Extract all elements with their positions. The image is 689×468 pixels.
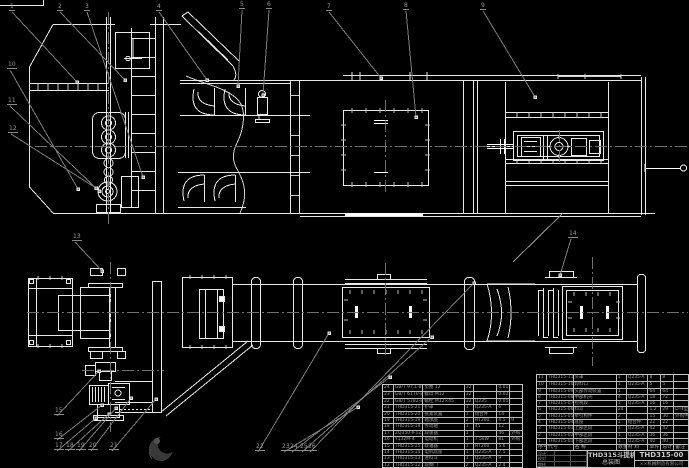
leader-end-dot [98,190,101,193]
bom-cell [509,405,522,410]
bom-cell: 8 [647,375,660,381]
leader-end-dot [142,176,145,179]
table-row: 1THD315-01下部区段1Q235-A4040 [537,438,688,444]
bom-cell: 料斗 [573,407,616,412]
bom-cell: 进料斗 [422,456,463,461]
bom-cell: GB/T 5782-86 [393,399,423,404]
bom-cell: 12 [496,424,509,429]
bom-cell: Q235-A [626,395,648,400]
bom-cell: 1 [616,439,626,444]
leader-line [483,11,535,97]
bom-cell: 中部机壳 [573,395,616,400]
leader-line [75,242,102,271]
bom-cell: THD315-02 [546,433,573,438]
callout-label: 6 [266,2,272,9]
bom-cell: 1 [464,424,473,429]
bom-cell: 14 [383,450,393,455]
table-row: 15THD315-15联轴器1HT2005.6 [383,443,522,449]
bom-cell: 4.5 [496,418,509,423]
bom-cell: 头罩 [573,375,616,381]
bom-cell: 15 [647,414,660,419]
leader-line [238,10,242,86]
bom-cell: 32 [464,385,473,391]
bom-cell: Q235-A [626,439,648,444]
leader-end-dot [206,79,209,82]
bom-cell: THD315-06 [546,407,573,412]
bom-cell: 垫圈 12 [422,385,463,391]
leader-line [57,405,102,440]
boot-column [89,269,126,359]
table-row: 18THD315-18传动轴14512 [383,423,522,429]
bom-cell: 72 [660,395,673,400]
callout-label: 12 [8,126,18,133]
bom-cell [509,444,522,449]
bom-cell: 9 [496,456,509,461]
bom-cell: 1 [616,426,626,431]
bom-cell: 40 [647,439,660,444]
bom-cell: 下部区段 [573,439,616,444]
bom-cell: 0.01 [496,385,509,391]
bom-cell [473,431,497,436]
bom-cell: 20 [383,412,393,417]
callout-label: 26 [307,444,317,451]
table-row: 20THD315-20张紧装置1组合件14 [383,411,522,417]
callout-label: 3 [84,4,90,11]
bom-cell: 减速器 [422,431,463,436]
bom-cell [673,420,688,425]
drive-platform [505,82,609,213]
projection-line [513,213,563,262]
leader-end-dot [130,397,133,400]
bom-cell: 21 [383,405,393,410]
signature-cell [555,462,571,467]
leader-line [10,106,99,191]
callout-label: 4 [156,4,162,11]
table-row: 3THD315-03上部区段1Q235-A4242 [537,425,688,431]
signature-label: 审核 [537,462,555,467]
bom-cell: 15 [383,444,393,449]
bom-cell: THD315-12 [393,463,423,468]
buckets-upper [193,88,246,115]
bom-cell: 17 [383,431,393,436]
drawing-number: THD315-00 [635,451,688,461]
bom-cell [673,401,688,406]
bom-cell: 32 [464,399,473,404]
leader-end-dot [101,404,104,407]
title-cell: THD315斗提机 总装图 [588,451,635,467]
bom-cell: 24 [383,385,393,391]
bom-cell: 12 [383,463,393,468]
watermark-logo [149,435,177,462]
bom-cell: 1 [616,389,626,394]
top-view-elevation [29,12,687,217]
bom-cell [673,426,688,431]
table-row: 10THD315-10卸料口1Q235-A55 [537,381,688,387]
callout-label: 17 [54,443,64,450]
bom-cell [673,389,688,394]
callout-label: 21 [109,443,119,450]
bom-cell: 40 [660,439,673,444]
bom-cell: 1 [616,420,626,425]
bom-cell [509,392,522,397]
leader-end-dot [76,81,79,84]
bom-cell: 电动机 [422,437,463,442]
bom-cell [509,463,522,468]
table-row: 14THD315-14电机底座1Q235-A7.5 [383,449,522,455]
callout-label: 5 [239,2,245,9]
leader-end-dot [431,336,434,339]
bom-cell: 1 [464,450,473,455]
bom-cell [626,389,648,394]
bom-cell: THD315-19 [393,418,423,423]
bom-cell: THD315-03 [546,426,573,431]
bom-cell: 螺栓 M12×45 [422,399,463,404]
bom-cell: 5 [647,382,660,387]
bom-cell [509,385,522,391]
bom-cell: 1 [616,433,626,438]
bom-cell: THD315-18 [393,424,423,429]
bom-cell: 23 [383,392,393,397]
bom-cell: 轴承座 [422,418,463,423]
bom-cell [673,382,688,387]
signature-cell [571,462,587,467]
signature-grid: 设计校对审核 [537,451,588,467]
bom-cell: 10 [537,382,546,387]
bom-cell: 46 [496,431,509,436]
bom-cell: 上部区段 [573,426,616,431]
bom-cell: 7.5kW [473,437,497,442]
bom-cell: 16 [647,401,660,406]
leader-line [560,239,571,275]
bom-cell: 护罩 [422,405,463,410]
bom-cell: Q235-A [473,463,497,468]
bom-cell: 螺母 M12 [422,392,463,397]
leader-end-dot [115,407,118,410]
bom-cell: 传动轴 [422,424,463,429]
bom-cell: 18 [647,395,660,400]
bom-cell: 底座 [573,420,616,425]
bom-cell: 卸料口 [573,382,616,387]
bom-cell: THD315-13 [393,456,423,461]
bom-cell: THD315-05 [546,414,573,419]
bom-cell: 1 [616,401,626,406]
bom-cell: 头部传动装置 [573,389,616,394]
bom-cell: Q235-A [626,401,648,406]
leader-end-dot [473,282,476,285]
bom-cell: 13 [383,456,393,461]
bom-cell: 24 [616,407,626,412]
bom-cell: THD315-04 [546,420,573,425]
callout-label: 15 [54,408,64,415]
callout-label: 19 [76,443,86,450]
bom-cell: 7.5 [496,450,509,455]
table-row: 21THD315-21护罩1Q235-A6 [383,404,522,410]
buckets-lower [183,175,236,202]
bom-cell [626,414,648,419]
bom-cell: HT200 [473,444,497,449]
bom-cell: 2 [464,463,473,468]
leader-line [258,333,329,452]
leader-line [263,10,269,95]
motor-gearbox-detail [90,382,154,421]
bom-cell: 1 [464,405,473,410]
bom-cell: 2 [464,418,473,423]
title-block: 设计校对审核 THD315斗提机 总装图 THD315-00 ××机械制造有限公… [536,450,689,468]
bom-cell: Q235-A [473,450,497,455]
bom-cell: 检视段 [573,401,616,406]
leader-end-dot [124,79,127,82]
bom-cell: 36 [647,433,660,438]
table-row: 23GB/T 6170-86螺母 M12320.02 [383,391,522,397]
bom-cell: Q235-A [473,456,497,461]
bom-cell: 1 [464,456,473,461]
bom-cell: 1 [464,431,473,436]
table-row: 24GB/T 97.1-85垫圈 12320.01 [383,385,522,391]
table-row: 4THD315-04底座1组合件2222 [537,419,688,425]
leader-line [329,12,381,78]
bom-cell [473,392,497,397]
bom-cell: Y132M-4 [393,437,423,442]
bom-cell: 组合件 [626,420,648,425]
bom-table-left: 24GB/T 97.1-85垫圈 12320.0123GB/T 6170-86螺… [382,384,523,468]
bom-cell: 30 [660,414,673,419]
bom-cell [509,399,522,404]
leader-line [159,12,207,80]
bom-cell: 观察门 [422,463,463,468]
bom-cell [626,407,648,412]
table-row: 12THD315-12观察门2Q235-A2.4 [383,462,522,468]
number-cell: THD315-00 ××机械制造有限公司 [635,451,688,467]
bom-cell [673,433,688,438]
leader-end-dot [95,417,98,420]
callout-label: 20 [88,443,98,450]
bom-cell: 22 [660,420,673,425]
bom-cell: 29 [660,407,673,412]
table-row: 7THD315-07检视段1Q235-A1616 [537,400,688,406]
bom-cell: 1.2 [647,407,660,412]
bom-table-right: 11THD315-11头罩1Q235-A8810THD315-10卸料口1Q23… [536,374,689,451]
cad-drawing-canvas: 24GB/T 97.1-85垫圈 12320.0123GB/T 6170-86螺… [0,0,689,468]
bom-cell: 32 [464,392,473,397]
bom-cell: 42 [647,426,660,431]
bom-cell: THD315-11 [546,375,573,381]
table-row: 19THD315-19轴承座2HT2004.59 [383,417,522,423]
bom-cell: Q235-A [626,433,648,438]
bom-cell: 外购 [509,437,522,442]
bom-cell: 5.6 [496,444,509,449]
callout-label: 24 [289,444,299,451]
callout-label: 16 [54,432,64,439]
bom-cell: 22 [383,399,393,404]
leader-end-dot [357,406,360,409]
table-row: 17ZQ350-Ⅱ-1Z减速器146外购 [383,430,522,436]
callout-label: 2 [57,4,63,11]
table-row: 2THD315-02中部区段1Q235-A3636 [537,432,688,438]
bom-cell: 1 [537,439,546,444]
bom-cell: THD315-20 [393,412,423,417]
bom-cell: 42 [660,426,673,431]
bom-cell: 6 [496,405,509,410]
callout-label: 22 [255,444,265,451]
leader-end-dot [77,188,80,191]
bom-cell: 81 [496,437,509,442]
leader-end-dot [101,270,104,273]
bom-cell: 0.02 [496,392,509,397]
bom-cell: 中部区段 [573,433,616,438]
discharge-rod [645,164,687,172]
table-row: 9THD315-09头部传动装置16464 [537,388,688,394]
bom-cell: 0.05 [496,399,509,404]
bom-cell: THD315-01 [546,439,573,444]
leader-end-dot [98,370,101,373]
bom-cell: DTⅡ型 [673,407,688,412]
drawing-title: THD315斗提机 [588,451,634,459]
callout-label: 14 [568,231,578,238]
bom-cell: 22 [647,420,660,425]
table-row: 16Y132M-4电动机17.5kW81外购 [383,436,522,442]
bom-cell: 联轴器 [422,444,463,449]
leader-end-dot [415,116,418,119]
bom-cell: 2 [616,414,626,419]
bom-cell: Q235 [473,399,497,404]
bom-cell: THD315-10 [546,382,573,387]
company-name: ××机械制造有限公司 [635,461,688,467]
bom-cell: 2.4 [496,463,509,468]
top-inlet-box [116,33,150,69]
bom-cell: 外购件 [673,414,688,419]
bom-cell: 4 [537,420,546,425]
bom-cell: 8 [537,395,546,400]
bom-cell: THD315-14 [393,450,423,455]
bom-cell: Q235-A [626,426,648,431]
bom-cell [509,412,522,417]
bom-cell: 19 [383,418,393,423]
bom-cell: THD315-08 [546,395,573,400]
bom-cell: 1 [616,375,626,381]
leader-end-dot [95,187,98,190]
table-row: 13THD315-13进料斗1Q235-A9 [383,455,522,461]
leader-line [11,134,96,188]
callout-label: 13 [72,234,82,241]
bom-cell: Q235-A [473,405,497,410]
bom-cell: 16 [383,437,393,442]
bom-cell: THD315-09 [546,389,573,394]
bom-cell [509,424,522,429]
bom-cell [509,456,522,461]
callout-label: 7 [326,4,332,11]
bom-cell [673,439,688,444]
table-row: 5THD315-05牵引构件21530外购件 [537,413,688,419]
bom-cell [673,395,688,400]
leader-line [292,377,390,452]
bom-cell: 张紧装置 [422,412,463,417]
bom-cell: THD315-07 [546,401,573,406]
table-row: 22GB/T 5782-86螺栓 M12×4532Q2350.05 [383,398,522,404]
bom-cell: GB/T 6170-86 [393,392,423,397]
callout-label: 11 [7,98,17,105]
bom-cell: THD315-21 [393,405,423,410]
bom-cell: 牵引构件 [573,414,616,419]
bom-cell: 外购 [509,431,522,436]
bom-cell: 45 [473,424,497,429]
callout-label: 9 [480,3,486,10]
callout-label: 1 [9,4,15,11]
callout-label: 8 [403,3,409,10]
bom-cell: HT200 [473,418,497,423]
leader-end-dot [534,96,537,99]
bom-cell: ZQ350-Ⅱ-1Z [393,431,423,436]
leader-end-dot [389,376,392,379]
leader-end-dot [380,77,383,80]
leader-end-dot [262,94,265,97]
bom-cell: Q235-A [626,382,648,387]
bom-cell [473,385,497,391]
bom-cell: Q235-A [626,375,648,381]
bom-cell: 电机底座 [422,450,463,455]
bom-cell: 14 [496,412,509,417]
bom-cell: 1 [464,444,473,449]
bom-cell: 8 [660,375,673,381]
table-row: 11THD315-11头罩1Q235-A88 [537,375,688,381]
bom-cell: 2 [537,433,546,438]
bom-cell: 16 [660,401,673,406]
bom-cell: 1 [616,382,626,387]
leader-line [406,11,416,117]
bom-cell: THD315-15 [393,444,423,449]
leader-end-dot [559,274,562,277]
bom-cell [673,375,688,381]
bom-cell: 1 [464,437,473,442]
bom-cell: 9 [509,418,522,423]
leader-line [12,12,77,82]
bom-cell: 5 [660,382,673,387]
bom-cell: 7 [537,401,546,406]
bom-cell: 5 [537,414,546,419]
bom-cell: 3 [537,426,546,431]
callout-label: 18 [65,443,75,450]
leader-end-dot [237,85,240,88]
bom-cell: 18 [383,424,393,429]
bom-cell: GB/T 97.1-85 [393,385,423,391]
bom-cell: 11 [537,375,546,381]
bom-cell: 36 [660,433,673,438]
table-row: 6THD315-06料斗241.229DTⅡ型 [537,406,688,412]
inlet-chute [182,12,239,80]
bom-cell: 64 [647,389,660,394]
bom-cell [509,450,522,455]
leader-end-dot [328,332,331,335]
bom-cell: 4 [616,395,626,400]
bom-cell: 64 [660,389,673,394]
callout-label: 10 [7,62,17,69]
bom-cell: 9 [537,389,546,394]
sheet-title: 总装图 [588,459,634,467]
bom-cell: 组合件 [473,412,497,417]
leader-end-dot [155,398,158,401]
bom-cell: 6 [537,407,546,412]
bom-cell: 1 [464,412,473,417]
drawing-frame-corner [0,0,44,6]
table-row: 8THD315-08中部机壳4Q235-A1872 [537,394,688,400]
